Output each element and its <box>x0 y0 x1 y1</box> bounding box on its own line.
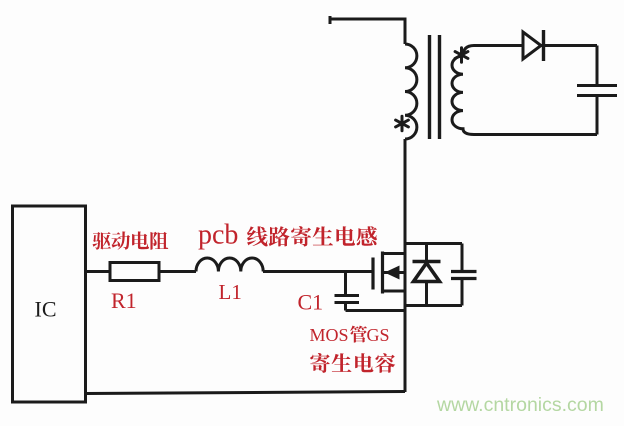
svg-text:C1: C1 <box>298 290 324 315</box>
svg-text:www.cntronics.com: www.cntronics.com <box>436 394 604 416</box>
svg-text:GS: GS <box>367 325 390 345</box>
svg-text:R1: R1 <box>111 288 137 313</box>
svg-text:IC: IC <box>35 297 57 322</box>
svg-text:L1: L1 <box>219 280 242 304</box>
svg-text:pcb: pcb <box>198 220 238 251</box>
svg-text:MOS: MOS <box>310 325 349 345</box>
